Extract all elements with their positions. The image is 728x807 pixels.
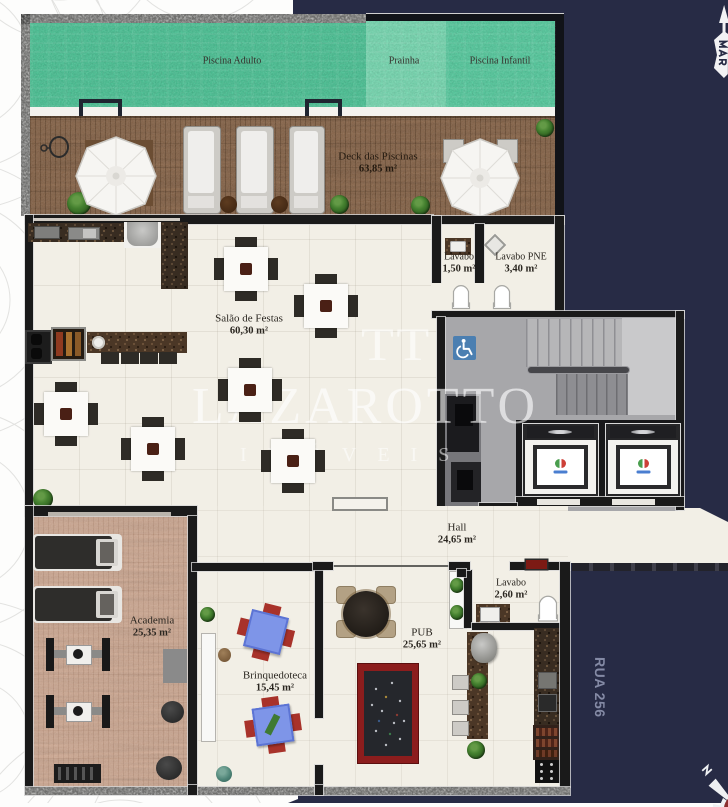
svg-text:RUA 256: RUA 256 — [592, 657, 608, 718]
